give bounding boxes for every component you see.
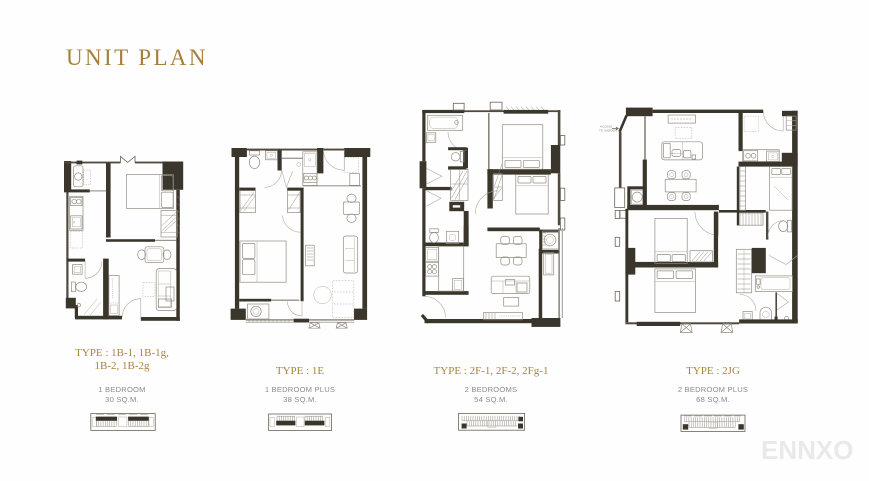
svg-text:TO GARDEN: TO GARDEN xyxy=(599,129,617,133)
